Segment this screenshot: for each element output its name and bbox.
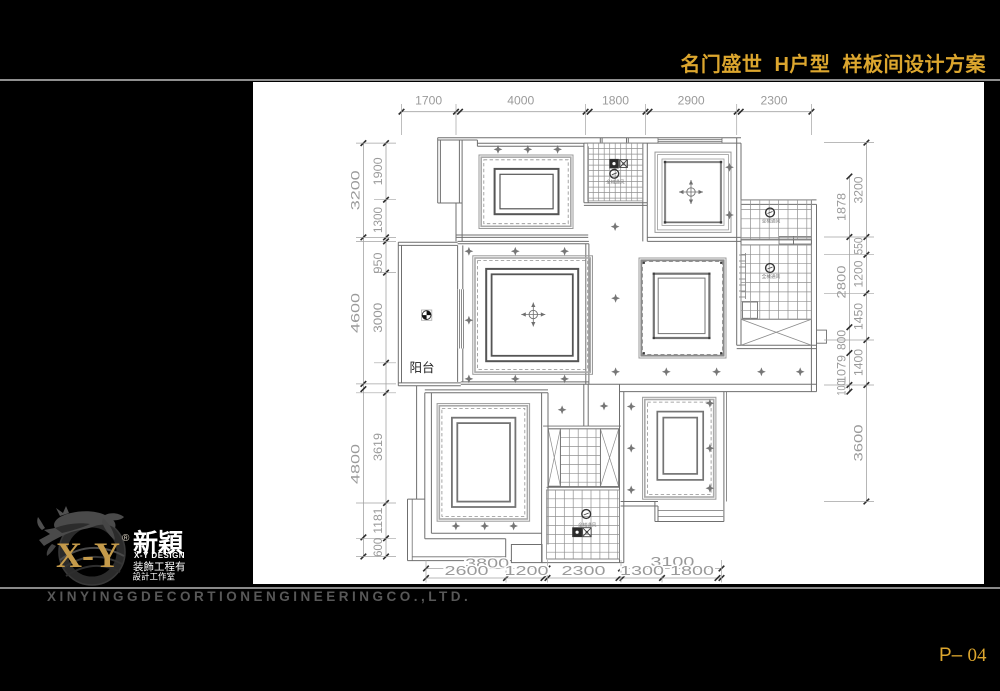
svg-text:1400: 1400 <box>854 349 866 376</box>
svg-text:1300: 1300 <box>620 563 664 578</box>
svg-text:X-Y DESIGN: X-Y DESIGN <box>134 551 185 560</box>
svg-text:X-Y: X-Y <box>56 535 120 575</box>
svg-text:全械通风: 全械通风 <box>762 273 781 280</box>
svg-text:3200: 3200 <box>854 177 866 204</box>
svg-text:2800: 2800 <box>837 266 849 299</box>
svg-text:600: 600 <box>373 538 385 557</box>
svg-text:1079: 1079 <box>837 355 849 383</box>
svg-text:全械通风: 全械通风 <box>606 179 625 186</box>
svg-text:1800: 1800 <box>602 96 629 108</box>
svg-text:550: 550 <box>854 238 866 255</box>
svg-text:1700: 1700 <box>415 96 442 108</box>
svg-text:4800: 4800 <box>351 444 363 484</box>
svg-text:設計工作室: 設計工作室 <box>133 572 176 582</box>
svg-text:2300: 2300 <box>761 96 788 108</box>
svg-text:1200: 1200 <box>854 261 866 288</box>
svg-text:4000: 4000 <box>507 96 534 108</box>
svg-text:全械通风: 全械通风 <box>762 218 781 225</box>
svg-text:1181: 1181 <box>373 508 385 534</box>
svg-text:1300: 1300 <box>373 207 385 233</box>
svg-text:3200: 3200 <box>351 170 363 210</box>
svg-text:1900: 1900 <box>373 157 385 185</box>
svg-text:4600: 4600 <box>351 293 363 333</box>
svg-text:800: 800 <box>837 330 849 350</box>
svg-text:®: ® <box>122 533 130 544</box>
svg-text:1878: 1878 <box>837 193 849 221</box>
svg-text:1800: 1800 <box>670 563 714 578</box>
svg-text:3619: 3619 <box>373 433 385 461</box>
svg-text:1200: 1200 <box>505 563 549 578</box>
svg-text:3600: 3600 <box>854 425 866 462</box>
svg-text:1450: 1450 <box>854 303 866 330</box>
svg-text:3000: 3000 <box>373 303 385 333</box>
svg-text:950: 950 <box>373 253 385 274</box>
svg-text:阳台: 阳台 <box>410 360 435 375</box>
svg-text:100: 100 <box>837 381 849 396</box>
svg-text:2900: 2900 <box>678 96 705 108</box>
svg-text:2300: 2300 <box>562 563 606 578</box>
svg-text:2600: 2600 <box>445 563 489 578</box>
